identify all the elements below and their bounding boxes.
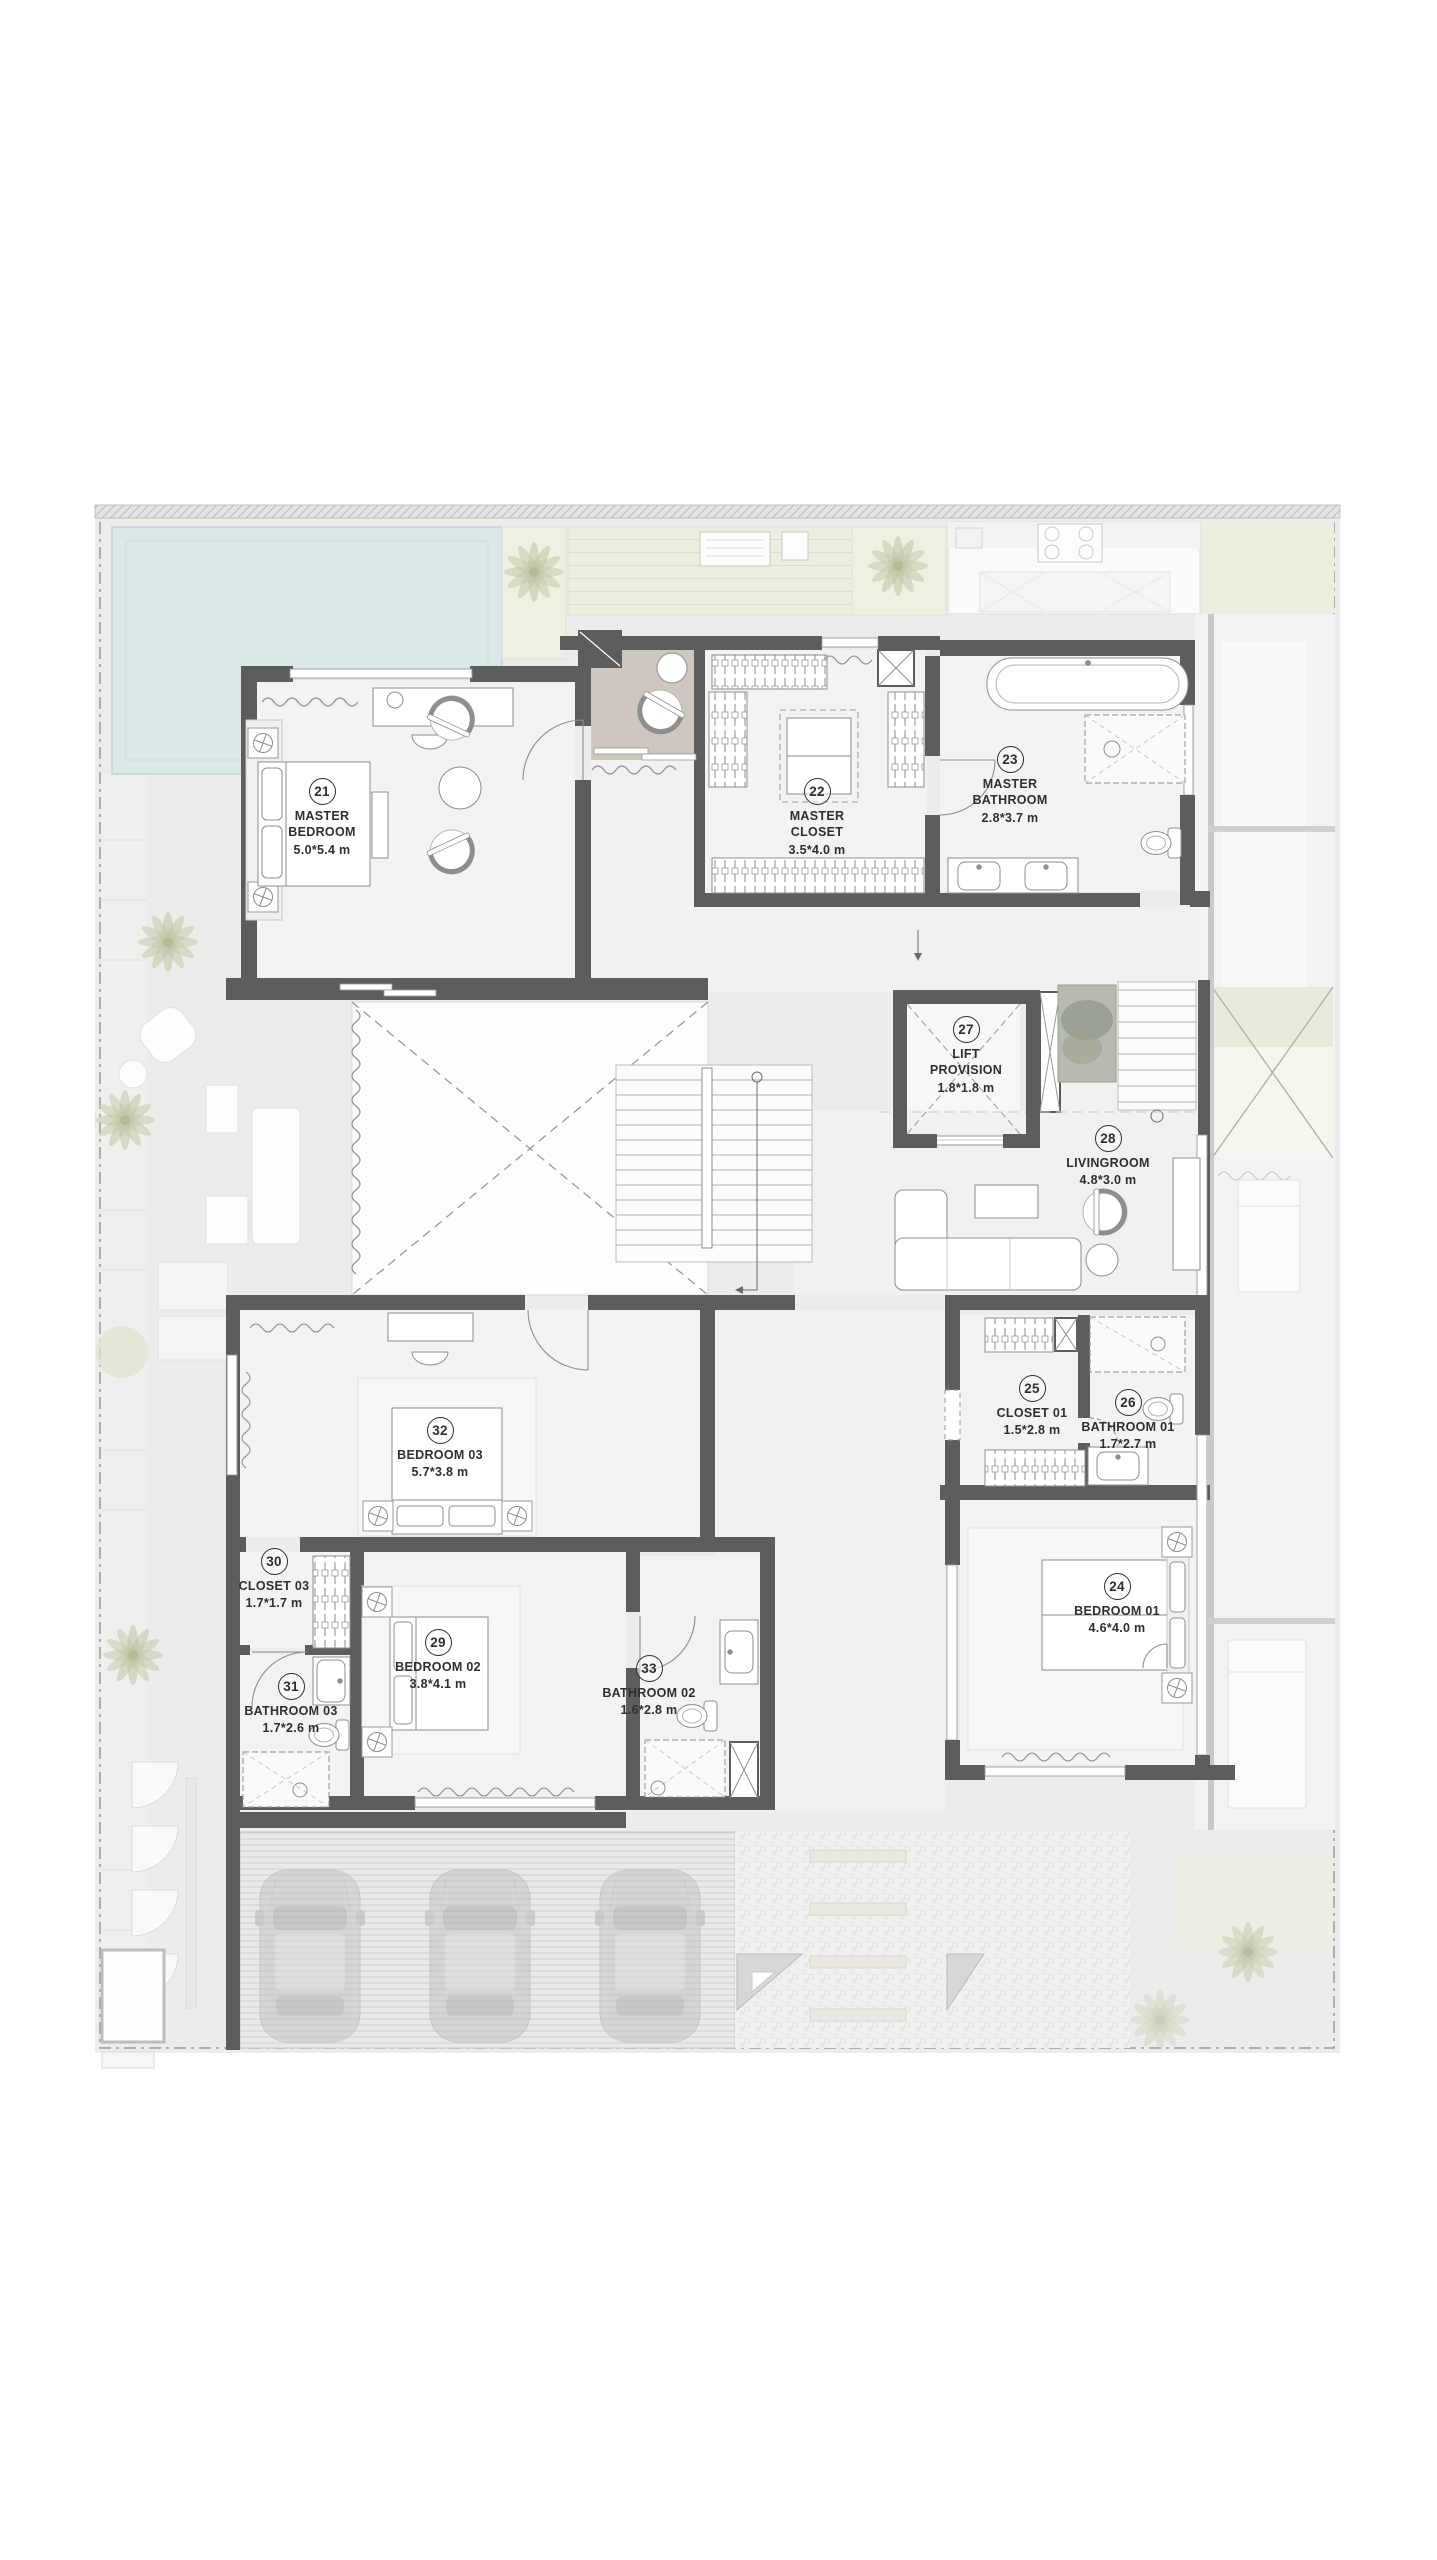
wardrobe [888,692,924,787]
kitchen-island [980,572,1170,612]
window [985,1767,1125,1776]
outdoor-sink [782,532,808,560]
bedside-table [502,1501,532,1531]
pillow [1170,1618,1185,1668]
main-staircase [616,1065,812,1290]
pillow [262,826,282,878]
side-table [439,767,481,809]
pillow [394,1676,412,1724]
wardrobe [712,655,827,689]
floor-plan: 21 MASTER BEDROOM 5.0*5.4 m 22 MASTER CL… [0,0,1437,2560]
shower [243,1752,329,1807]
wardrobe [709,692,747,787]
pebble-path [735,1832,1130,2048]
outdoor-grill [700,532,770,566]
shrub-icon [96,1326,148,1378]
pillow [449,1506,495,1526]
pillow [394,1622,412,1670]
bedside-table [362,1727,392,1757]
garage [240,1832,735,2048]
wardrobe [313,1556,350,1648]
window [1197,1435,1207,1755]
secondary-staircase [1118,982,1196,1122]
bedside-table [248,728,278,758]
stove-icon [1038,524,1102,562]
sliding-door [340,984,392,990]
desk [388,1313,473,1341]
wardrobe [712,858,924,893]
neighbor-unit-ghost [1195,614,1335,1830]
closet-03-wardrobe [313,1556,350,1648]
console [1173,1158,1200,1270]
pillow [262,768,282,820]
bedside-table [1162,1527,1192,1557]
armchair-icon [1083,1189,1127,1235]
window [290,669,472,678]
pillow [1170,1562,1185,1612]
floor-plan-drawing [0,0,1437,2560]
bedroom-01-furniture [968,1527,1192,1761]
window [947,1565,957,1740]
garden-store [102,1950,164,2042]
bedside-table [363,1501,393,1531]
site-top-hatch [95,505,1340,518]
car-icon [425,1870,535,2042]
pillow [397,1506,443,1526]
door-opening [945,1390,960,1440]
entry-step [102,2052,154,2068]
wardrobe [985,1450,1085,1486]
side-table [1086,1244,1118,1276]
window [415,1798,595,1807]
sofa-icon [895,1238,1081,1290]
wardrobe [985,1318,1053,1352]
bedside-table [1162,1673,1192,1703]
stair-rail [702,1068,712,1248]
bed-bench [372,792,388,858]
sliding-door [594,748,648,754]
deck-upper-right [1205,522,1334,612]
floor-landing [698,907,1198,992]
window [822,638,878,647]
coffee-table [975,1185,1038,1218]
window [227,1355,237,1475]
stair-planter [1058,985,1116,1082]
bedside-table [362,1587,392,1617]
car-icon [255,1870,365,2042]
ghost-kitchen [948,522,1200,614]
car-icon [595,1870,705,2042]
